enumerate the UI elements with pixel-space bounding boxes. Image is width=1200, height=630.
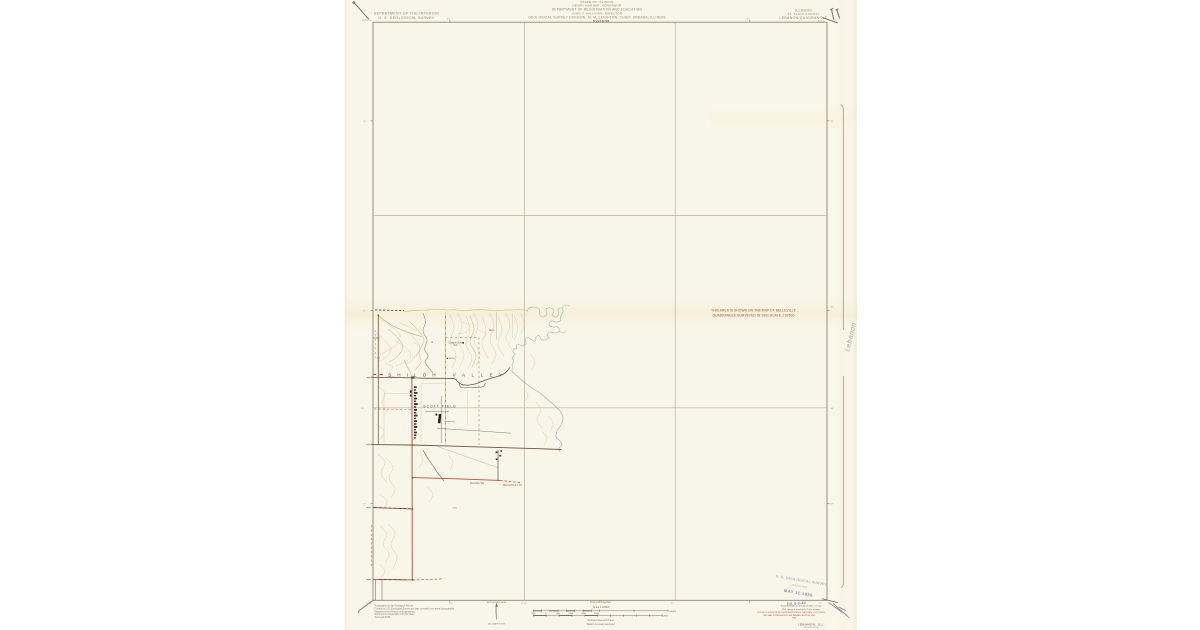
svg-text:SCOTT FIELD: SCOTT FIELD — [423, 405, 456, 409]
svg-text:Surveyed 1935: Surveyed 1935 — [375, 616, 391, 619]
svg-text:5000: 5000 — [556, 613, 560, 615]
svg-text:APPROXIMATE MEAN: APPROXIMATE MEAN — [487, 601, 507, 604]
svg-text:Reprinted duplicate of origina: Reprinted duplicate of original edition … — [781, 605, 822, 608]
svg-text:Scale 1:62,500: Scale 1:62,500 — [593, 20, 610, 23]
svg-text:Polyconic projection: Polyconic projection — [590, 601, 612, 604]
svg-text:20000: 20000 — [594, 613, 599, 615]
svg-text:With springs it stands year 2: With springs it stands year 2 now wantin… — [782, 608, 820, 611]
svg-text:U. S. GEOLOGICAL SURVEY: U. S. GEOLOGICAL SURVEY — [378, 16, 434, 20]
svg-text:5000: 5000 — [531, 613, 535, 615]
svg-text:Surveyed in cooperation with t: Surveyed in cooperation with the State — [375, 613, 416, 616]
svg-text:VALLEY: VALLEY — [453, 373, 509, 378]
svg-text:BELLEVILLE 4 MI: BELLEVILLE 4 MI — [503, 485, 522, 487]
svg-text:89°45': 89°45' — [818, 20, 825, 22]
svg-text:Control by U.S. Geological Sur: Control by U.S. Geological Survey and pa… — [375, 608, 456, 611]
svg-text:Mapped by the Division of Engi: Mapped by the Division of Engineering — [375, 610, 416, 613]
svg-text:Datum is mean sea level.: Datum is mean sea level. — [587, 622, 616, 626]
svg-text:QUADRANGLE SURVEYED IN 1901 S: QUADRANGLE SURVEYED IN 1901 SCALE 1:6250… — [712, 313, 794, 317]
svg-text:47'30": 47'30" — [521, 603, 527, 605]
svg-text:BM 447: BM 447 — [449, 358, 457, 360]
svg-text:Contour interval 10 feet.: Contour interval 10 feet. — [588, 618, 615, 622]
svg-text:15000: 15000 — [581, 613, 586, 615]
svg-text:LEBANON, ILL.: LEBANON, ILL. — [798, 623, 825, 627]
svg-text:Sch: Sch — [454, 344, 459, 347]
svg-text:CONTROL SURVEYS IN COOPERATION: CONTROL SURVEYS IN COOPERATION WITH THE … — [757, 611, 826, 614]
svg-text:HENRY HORNER, GOVERNOR: HENRY HORNER, GOVERNOR — [573, 3, 622, 7]
svg-text:10000: 10000 — [568, 613, 573, 615]
svg-text:THIS AREA IS SHOWN ON THE MAP: THIS AREA IS SHOWN ON THE MAP OF BELLEVI… — [711, 308, 796, 312]
svg-text:DECLINATION 1935: DECLINATION 1935 — [488, 622, 505, 625]
svg-text:THIS MAP SUPERSEDES PRELIMINAR: THIS MAP SUPERSEDES PRELIMINARY EDITION … — [763, 614, 816, 617]
svg-text:Rentchler Sta: Rentchler Sta — [470, 482, 485, 485]
svg-text:0: 0 — [545, 613, 546, 615]
svg-text:89°52'30": 89°52'30" — [362, 20, 372, 22]
svg-text:Scale 1:62500: Scale 1:62500 — [593, 605, 610, 609]
svg-text:EDITION OF 1935: EDITION OF 1935 — [804, 627, 820, 629]
svg-text:SHILOH: SHILOH — [388, 372, 442, 377]
svg-text:Topography by the Geological S: Topography by the Geological Survey — [375, 605, 415, 608]
svg-text:MILES: MILES — [670, 611, 677, 613]
